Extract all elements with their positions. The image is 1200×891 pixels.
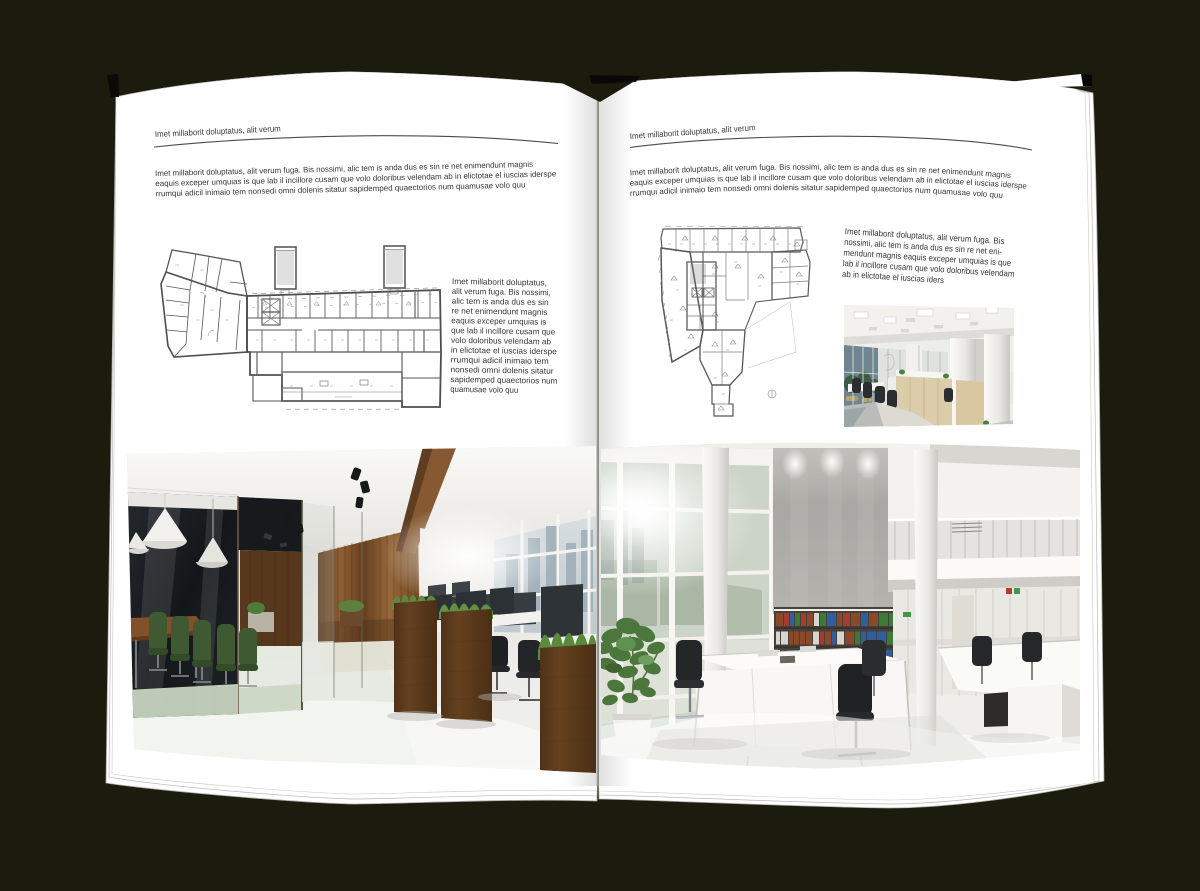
svg-text:volo doloribus velendam ab: volo doloribus velendam ab — [451, 336, 552, 347]
svg-text:Imet millaborit doluptatus,: Imet millaborit doluptatus, — [452, 277, 547, 287]
svg-text:que lab il incillore cusam que: que lab il incillore cusam que — [451, 326, 556, 337]
svg-text:eaquis exceper umquias is: eaquis exceper umquias is — [451, 316, 546, 326]
svg-text:re net enimendunt magnis: re net enimendunt magnis — [451, 306, 547, 317]
svg-text:rrumqui adicil inimaio tem: rrumqui adicil inimaio tem — [451, 355, 549, 366]
svg-text:alic tem is anda dus es sin: alic tem is anda dus es sin — [452, 297, 550, 308]
svg-text:quamusae volo quu: quamusae volo quu — [450, 385, 519, 395]
svg-text:alit verum fuga. Bis nossimi,: alit verum fuga. Bis nossimi, — [452, 287, 551, 298]
svg-text:nonsedi omni dolenis sitatur: nonsedi omni dolenis sitatur — [450, 365, 553, 376]
